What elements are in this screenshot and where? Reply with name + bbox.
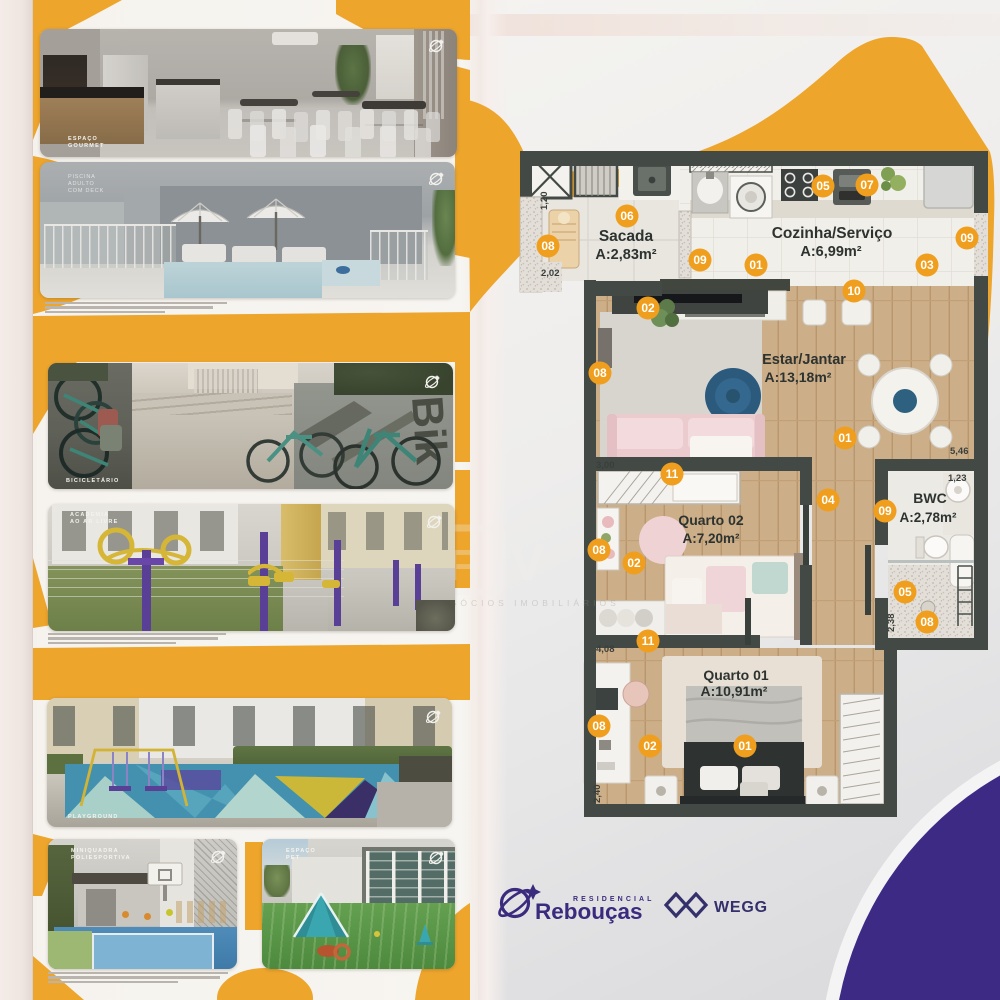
svg-text:A:6,99m²: A:6,99m² [800, 244, 861, 260]
svg-text:A:13,18m²: A:13,18m² [765, 369, 832, 385]
svg-text:01: 01 [749, 258, 763, 272]
svg-text:06: 06 [620, 209, 634, 223]
svg-text:V: V [510, 534, 545, 592]
svg-text:Quarto 02: Quarto 02 [678, 512, 744, 528]
svg-text:04: 04 [821, 493, 835, 507]
svg-text:02: 02 [643, 739, 657, 753]
svg-text:01: 01 [738, 739, 752, 753]
svg-text:05: 05 [816, 179, 830, 193]
svg-text:09: 09 [960, 231, 974, 245]
svg-text:A:7,20m²: A:7,20m² [682, 531, 740, 546]
svg-text:02: 02 [627, 556, 641, 570]
svg-text:11: 11 [642, 634, 655, 648]
svg-text:08: 08 [592, 719, 606, 733]
svg-text:4,08: 4,08 [596, 644, 615, 655]
svg-text:07: 07 [860, 178, 874, 192]
svg-text:A:2,83m²: A:2,83m² [595, 247, 656, 263]
svg-text:1,23: 1,23 [948, 473, 967, 484]
svg-text:2,02: 2,02 [541, 268, 560, 279]
svg-text:08: 08 [920, 615, 934, 629]
svg-text:2,40: 2,40 [592, 785, 603, 804]
svg-text:Cozinha/Serviço: Cozinha/Serviço [772, 225, 893, 242]
svg-text:1,20: 1,20 [539, 192, 550, 211]
svg-text:01: 01 [838, 431, 852, 445]
svg-text:11: 11 [666, 467, 679, 481]
svg-text:09: 09 [693, 253, 707, 267]
svg-text:08: 08 [541, 239, 555, 253]
svg-text:A:2,78m²: A:2,78m² [899, 510, 957, 525]
svg-text:2,38: 2,38 [886, 614, 897, 633]
svg-text:Quarto 01: Quarto 01 [703, 667, 769, 683]
svg-text:BWC: BWC [913, 490, 946, 506]
svg-text:WEGG: WEGG [714, 899, 768, 916]
svg-text:10: 10 [847, 284, 861, 298]
svg-text:02: 02 [641, 301, 655, 315]
svg-text:3,00: 3,00 [596, 460, 615, 471]
svg-text:03: 03 [920, 258, 934, 272]
svg-text:08: 08 [592, 543, 606, 557]
svg-text:Estar/Jantar: Estar/Jantar [762, 352, 846, 368]
svg-text:05: 05 [898, 585, 912, 599]
svg-text:Rebouças: Rebouças [535, 899, 643, 924]
svg-text:08: 08 [593, 366, 607, 380]
svg-text:A:10,91m²: A:10,91m² [701, 683, 768, 699]
svg-text:09: 09 [878, 504, 892, 518]
svg-text:5,46: 5,46 [950, 446, 969, 457]
svg-text:NEGÓCIOS IMOBILIÁRIOS: NEGÓCIOS IMOBILIÁRIOS [430, 598, 620, 608]
svg-text:Sacada: Sacada [599, 228, 654, 245]
